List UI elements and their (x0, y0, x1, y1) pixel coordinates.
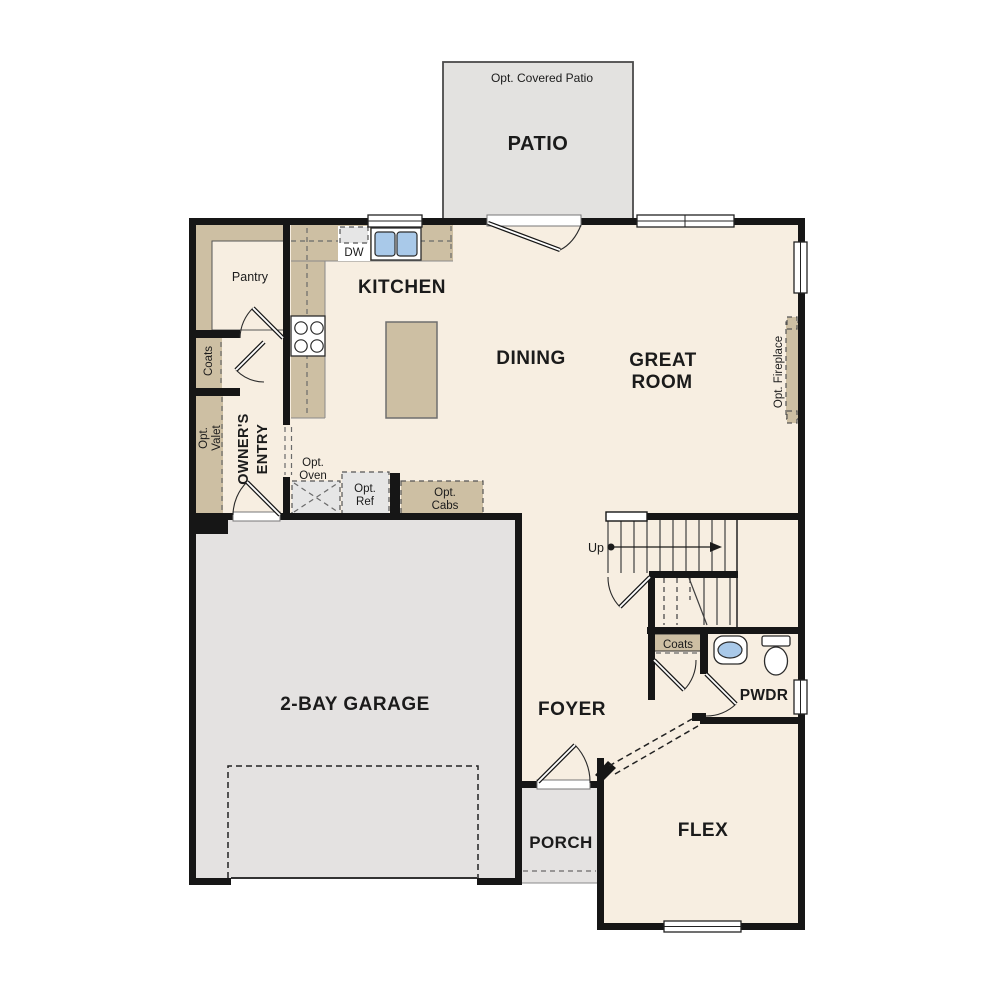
garage-label: 2-BAY GARAGE (280, 694, 430, 715)
dining-label: DINING (496, 348, 566, 369)
wall (648, 578, 655, 700)
wall (189, 218, 196, 885)
great-room-top-window (637, 215, 734, 227)
wall (189, 330, 240, 338)
owners-entry-threshold (233, 512, 280, 521)
opt-ref-label-2: Ref (356, 496, 375, 508)
burner-icon (311, 340, 323, 352)
opt-valet-label-1: Opt. (198, 427, 210, 449)
wall (647, 513, 805, 520)
wall (515, 781, 537, 788)
pantry-label: Pantry (232, 270, 269, 284)
opt-cabs-label-2: Cabs (432, 500, 459, 512)
valet-shelf (196, 396, 223, 517)
wall (700, 627, 708, 674)
wall (189, 218, 368, 225)
opt-fireplace-label: Opt. Fireplace (773, 336, 785, 408)
opt-valet-label-2: Valet (211, 425, 223, 451)
dw-label: DW (344, 247, 363, 259)
wall (740, 923, 805, 930)
great-room-right-window (794, 242, 807, 293)
kitchen-window (368, 215, 422, 227)
floor-plan-svg: Opt. Covered Patio PATIO Pantry Coats Op… (0, 0, 1000, 1000)
sink-basin-left (375, 232, 395, 256)
wall-pilaster (196, 520, 228, 534)
wall (189, 388, 240, 396)
wall (422, 218, 487, 225)
sink-basin-right (397, 232, 417, 256)
kitchen-island (386, 322, 437, 418)
wall (798, 218, 805, 244)
wall (733, 218, 805, 225)
wall (798, 713, 805, 930)
coats-stairs-label: Coats (663, 639, 693, 651)
patio-note-label: Opt. Covered Patio (491, 71, 593, 85)
wall (590, 781, 600, 788)
great-room-label-1: GREAT (629, 350, 697, 371)
wall (700, 717, 805, 724)
opt-ref-label-1: Opt. (354, 483, 376, 495)
owners-entry-label-2: ENTRY (255, 424, 271, 475)
wall (189, 878, 231, 885)
fireplace-notch (787, 317, 797, 329)
up-label: Up (588, 541, 604, 555)
patio-door-threshold (487, 215, 581, 226)
wall (515, 513, 522, 885)
porch-label: PORCH (529, 833, 592, 852)
powder-sink-bowl (718, 642, 742, 658)
burner-icon (311, 322, 323, 334)
wall (597, 923, 665, 930)
powder-window (794, 680, 807, 714)
wall (692, 713, 706, 721)
front-door-threshold (537, 780, 590, 789)
toilet-tank (762, 636, 790, 646)
wall (647, 627, 805, 634)
wall (798, 292, 805, 681)
garage-door-gap (231, 878, 477, 886)
wall (189, 513, 233, 520)
flex-label: FLEX (678, 820, 729, 841)
opt-oven-label-1: Opt. (302, 457, 324, 469)
opt-cabs-label-1: Opt. (434, 487, 456, 499)
opt-oven-label-2: Oven (299, 470, 327, 482)
stair-rail (606, 512, 647, 521)
fireplace-notch (787, 411, 797, 423)
floor-plan-page: Opt. Covered Patio PATIO Pantry Coats Op… (0, 0, 1000, 1000)
pwdr-label: PWDR (740, 687, 789, 704)
wall (283, 218, 290, 425)
pantry-inner (212, 241, 285, 330)
burner-icon (295, 340, 307, 352)
patio-label: PATIO (508, 133, 569, 155)
wall (390, 473, 400, 517)
flex-window (664, 921, 741, 932)
patio-area: Opt. Covered Patio PATIO (443, 62, 633, 219)
foyer-label: FOYER (538, 699, 606, 720)
wall (283, 477, 290, 520)
dishwasher (340, 227, 368, 243)
coats-left-label: Coats (203, 346, 215, 376)
kitchen-label: KITCHEN (358, 277, 446, 298)
wall (581, 218, 638, 225)
great-room-label-2: ROOM (631, 372, 692, 393)
wall (280, 513, 522, 520)
burner-icon (295, 322, 307, 334)
toilet-bowl (765, 647, 788, 675)
wall (649, 571, 738, 578)
owners-entry-label-1: OWNER'S (236, 413, 252, 485)
